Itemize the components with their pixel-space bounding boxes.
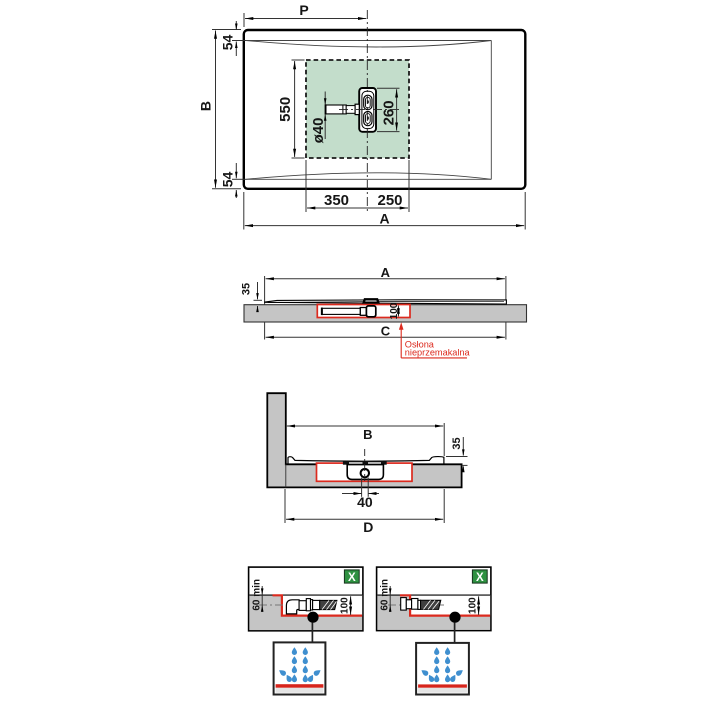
svg-text:35: 35 bbox=[451, 437, 463, 449]
svg-text:B: B bbox=[198, 101, 214, 111]
svg-text:54: 54 bbox=[220, 172, 236, 188]
svg-text:100: 100 bbox=[389, 302, 400, 319]
svg-text:100: 100 bbox=[467, 597, 478, 614]
svg-text:nieprzemakalna: nieprzemakalna bbox=[405, 348, 471, 358]
svg-text:P: P bbox=[299, 2, 308, 18]
svg-text:ø40: ø40 bbox=[310, 118, 327, 144]
svg-text:100: 100 bbox=[339, 597, 350, 614]
svg-text:35: 35 bbox=[241, 283, 253, 295]
svg-text:A: A bbox=[379, 211, 389, 227]
svg-text:X: X bbox=[348, 572, 356, 584]
svg-text:54: 54 bbox=[220, 35, 236, 51]
svg-text:B: B bbox=[363, 427, 372, 442]
svg-text:60 min: 60 min bbox=[252, 579, 263, 611]
svg-text:40: 40 bbox=[357, 494, 373, 510]
svg-text:260: 260 bbox=[381, 100, 398, 125]
svg-text:D: D bbox=[363, 519, 373, 535]
svg-text:350: 350 bbox=[324, 192, 349, 209]
svg-text:550: 550 bbox=[277, 97, 294, 122]
svg-text:A: A bbox=[381, 265, 391, 280]
svg-text:60 min: 60 min bbox=[380, 579, 391, 611]
svg-text:250: 250 bbox=[377, 192, 402, 209]
svg-text:C: C bbox=[381, 324, 391, 339]
svg-text:X: X bbox=[476, 572, 484, 584]
